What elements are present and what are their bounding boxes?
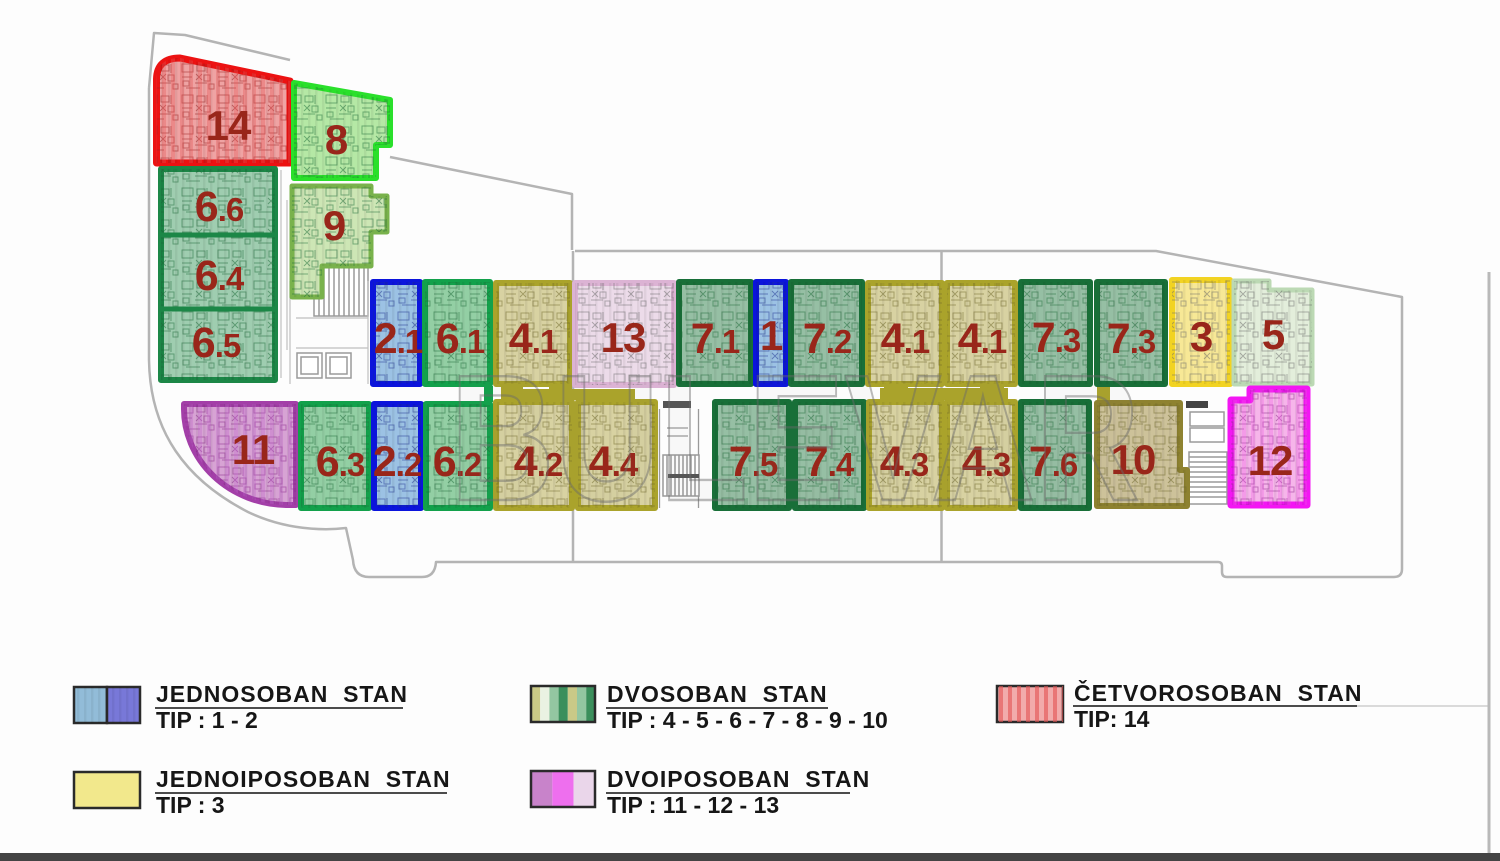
svg-text:TIP : 3: TIP : 3 bbox=[156, 792, 225, 818]
svg-text:JEDNOSOBAN STAN: JEDNOSOBAN STAN bbox=[156, 681, 408, 707]
svg-text:6.3: 6.3 bbox=[316, 438, 365, 486]
svg-text:BULEVAR: BULEVAR bbox=[450, 338, 1140, 539]
svg-text:8: 8 bbox=[325, 116, 348, 163]
svg-text:2.1: 2.1 bbox=[374, 315, 423, 363]
svg-text:9: 9 bbox=[323, 202, 345, 249]
svg-text:2.2: 2.2 bbox=[373, 438, 422, 486]
svg-text:JEDNOIPOSOBAN STAN: JEDNOIPOSOBAN STAN bbox=[156, 766, 451, 792]
svg-text:12: 12 bbox=[1248, 437, 1293, 484]
svg-text:ČETVOROSOBAN STAN: ČETVOROSOBAN STAN bbox=[1074, 679, 1362, 706]
svg-text:6.6: 6.6 bbox=[195, 183, 244, 231]
svg-text:6.4: 6.4 bbox=[195, 252, 245, 300]
svg-text:5: 5 bbox=[1262, 311, 1285, 358]
svg-text:TIP : 1 - 2: TIP : 1 - 2 bbox=[156, 707, 258, 733]
svg-text:3: 3 bbox=[1190, 313, 1212, 360]
svg-text:14: 14 bbox=[206, 102, 252, 149]
svg-text:6.5: 6.5 bbox=[192, 319, 241, 367]
svg-text:TIP: 14: TIP: 14 bbox=[1074, 706, 1150, 732]
svg-text:TIP : 4 - 5 - 6 - 7 - 8 - 9 -: TIP : 4 - 5 - 6 - 7 - 8 - 9 - 10 bbox=[607, 707, 888, 733]
svg-text:DVOSOBAN STAN: DVOSOBAN STAN bbox=[607, 681, 828, 707]
svg-text:11: 11 bbox=[232, 426, 275, 473]
svg-text:TIP : 11 - 12 - 13: TIP : 11 - 12 - 13 bbox=[607, 792, 779, 818]
svg-text:DVOIPOSOBAN STAN: DVOIPOSOBAN STAN bbox=[607, 766, 870, 792]
